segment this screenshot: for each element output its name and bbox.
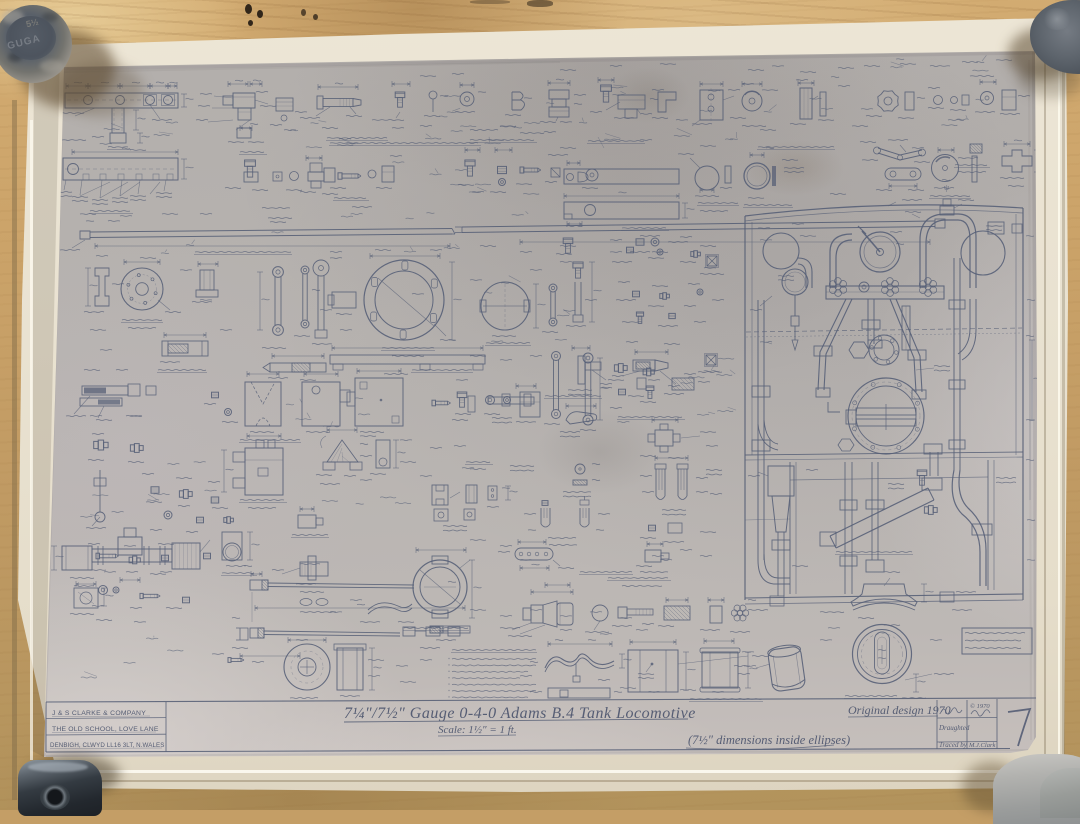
svg-text:Traced by: Traced by <box>939 741 968 749</box>
svg-text:Scale: 1½″ = 1 ft.: Scale: 1½″ = 1 ft. <box>438 724 517 736</box>
svg-text:ψ: ψ <box>944 183 949 192</box>
svg-text:(7½″ dimensions inside ellipse: (7½″ dimensions inside ellipses) <box>688 733 850 747</box>
svg-text:Original design 1970: Original design 1970 <box>848 703 951 717</box>
svg-text:M.J.Clark: M.J.Clark <box>968 742 995 749</box>
svg-text:Draughted: Draughted <box>938 724 970 732</box>
svg-text:© 1970: © 1970 <box>970 703 990 710</box>
